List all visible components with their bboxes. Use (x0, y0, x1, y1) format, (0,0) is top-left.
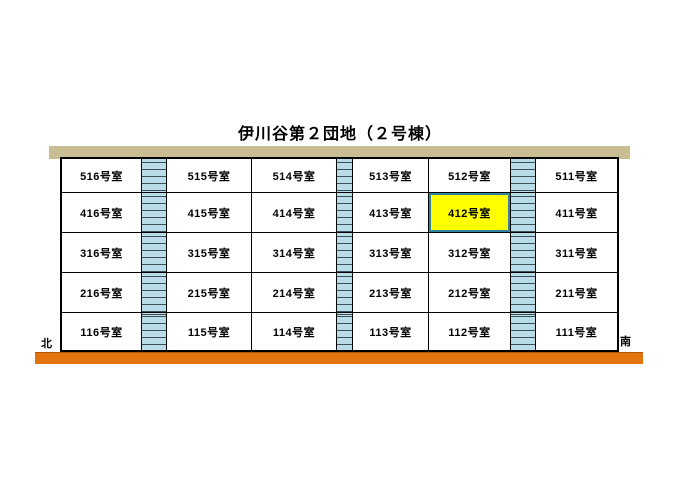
stairwell (142, 233, 166, 272)
compass-label-north: 北 (41, 335, 52, 351)
room-cell-212[interactable]: 212号室 (429, 273, 510, 312)
room-cell-414[interactable]: 414号室 (252, 193, 336, 232)
room-cell-514[interactable]: 514号室 (252, 159, 336, 192)
room-cell-311[interactable]: 311号室 (536, 233, 617, 272)
room-cell-411[interactable]: 411号室 (536, 193, 617, 232)
room-cell-511[interactable]: 511号室 (536, 159, 617, 192)
stairwell (142, 273, 166, 312)
stairwell (337, 313, 352, 350)
room-cell-113[interactable]: 113号室 (353, 313, 428, 350)
room-cell-416[interactable]: 416号室 (62, 193, 141, 232)
room-cell-516[interactable]: 516号室 (62, 159, 141, 192)
stairwell (511, 313, 535, 350)
room-cell-314[interactable]: 314号室 (252, 233, 336, 272)
room-cell-211[interactable]: 211号室 (536, 273, 617, 312)
room-cell-513[interactable]: 513号室 (353, 159, 428, 192)
stairwell (511, 193, 535, 232)
room-cell-313[interactable]: 313号室 (353, 233, 428, 272)
stairwell (337, 233, 352, 272)
stairwell (142, 313, 166, 350)
page-title: 伊川谷第２団地（２号棟） (0, 120, 680, 144)
room-cell-412[interactable]: 412号室 (429, 193, 510, 232)
ground-bar (35, 352, 643, 364)
room-cell-116[interactable]: 116号室 (62, 313, 141, 350)
room-cell-415[interactable]: 415号室 (167, 193, 251, 232)
room-cell-316[interactable]: 316号室 (62, 233, 141, 272)
stairwell (511, 159, 535, 192)
building-grid: 516号室515号室514号室513号室512号室511号室416号室415号室… (60, 157, 619, 352)
stairwell (511, 233, 535, 272)
room-cell-216[interactable]: 216号室 (62, 273, 141, 312)
stairwell (337, 159, 352, 192)
room-cell-112[interactable]: 112号室 (429, 313, 510, 350)
room-cell-114[interactable]: 114号室 (252, 313, 336, 350)
room-cell-515[interactable]: 515号室 (167, 159, 251, 192)
room-cell-312[interactable]: 312号室 (429, 233, 510, 272)
room-cell-315[interactable]: 315号室 (167, 233, 251, 272)
stairwell (337, 193, 352, 232)
stairwell (142, 159, 166, 192)
room-cell-111[interactable]: 111号室 (536, 313, 617, 350)
stairwell (511, 273, 535, 312)
room-cell-214[interactable]: 214号室 (252, 273, 336, 312)
stairwell (142, 193, 166, 232)
compass-label-south: 南 (620, 333, 631, 349)
room-cell-115[interactable]: 115号室 (167, 313, 251, 350)
room-cell-213[interactable]: 213号室 (353, 273, 428, 312)
stairwell (337, 273, 352, 312)
room-cell-215[interactable]: 215号室 (167, 273, 251, 312)
room-cell-512[interactable]: 512号室 (429, 159, 510, 192)
room-cell-413[interactable]: 413号室 (353, 193, 428, 232)
floor-plan-canvas: 伊川谷第２団地（２号棟） 516号室515号室514号室513号室512号室51… (0, 0, 680, 480)
